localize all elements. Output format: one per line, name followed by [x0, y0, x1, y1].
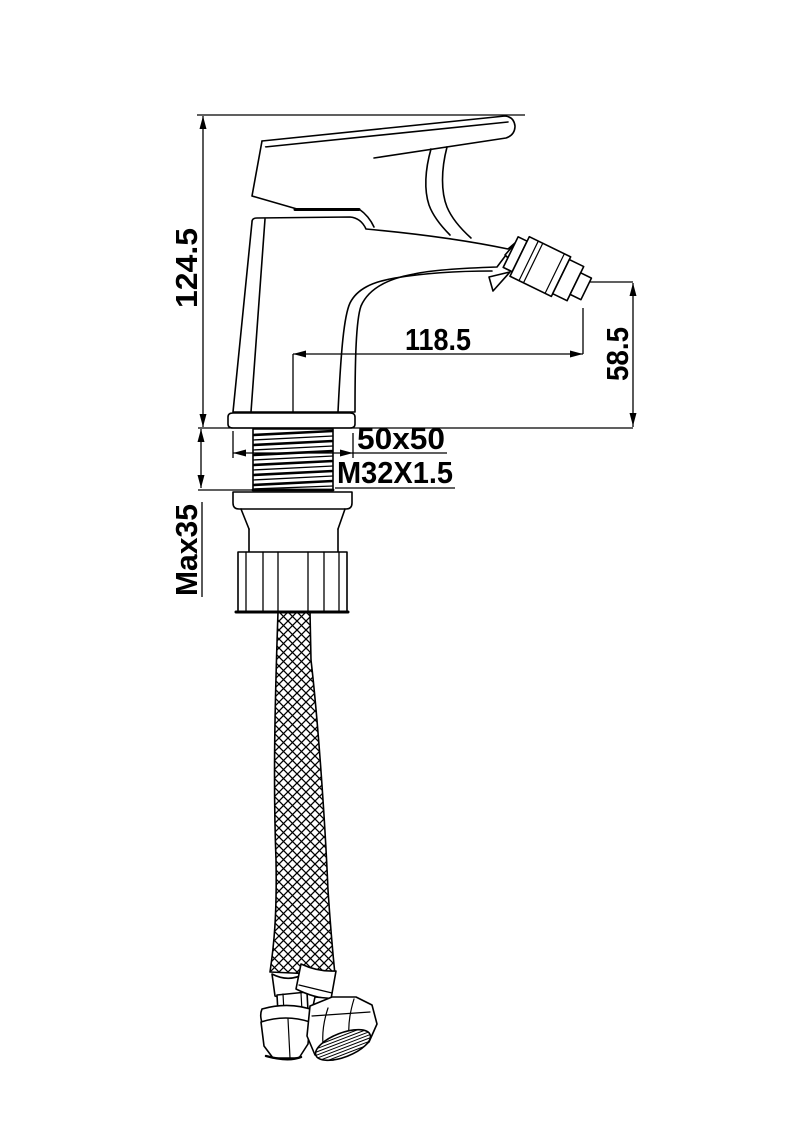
arrow-height-bottom — [200, 414, 207, 427]
mounting-nut — [238, 552, 347, 612]
arrow-reach-right — [570, 351, 583, 358]
arrow-max-top — [198, 429, 205, 442]
label-spout-reach: 118.5 — [405, 322, 471, 357]
handle-neck-curve-back — [443, 147, 472, 238]
label-base-plate: 50x50 — [357, 421, 445, 456]
supply-flange — [233, 492, 352, 509]
base-plate — [228, 413, 355, 428]
faucet-technical-drawing: 124.5 118.5 58.5 50x50 M32X1.5 Max35 — [0, 0, 793, 1123]
label-outlet-height: 58.5 — [600, 327, 635, 381]
arrow-plate-left — [233, 450, 246, 457]
supply-connector — [233, 492, 352, 612]
label-overall-height: 124.5 — [169, 228, 204, 308]
supply-taper — [241, 509, 345, 529]
arrow-max-bottom — [198, 475, 205, 488]
spout-tip-wedge — [489, 272, 510, 291]
faucet-outline — [228, 116, 596, 1067]
arrow-height-top — [200, 116, 207, 129]
drawing-sheet: 124.5 118.5 58.5 50x50 M32X1.5 Max35 — [0, 0, 793, 1123]
label-thread: M32X1.5 — [337, 455, 453, 490]
arrow-outlet-bottom — [630, 413, 637, 426]
arrow-outlet-top — [630, 283, 637, 296]
handle-blade — [262, 116, 515, 158]
left-cap-hex — [261, 1018, 310, 1058]
braided-hose — [270, 612, 335, 975]
supply-cylinder — [249, 529, 338, 552]
handle-neck-curve-front — [426, 149, 450, 235]
faucet-body — [233, 217, 515, 412]
handle-block — [252, 141, 297, 209]
label-max-thickness: Max35 — [169, 504, 204, 596]
aerator-nozzle — [501, 232, 596, 308]
mounting-thread — [253, 429, 333, 490]
